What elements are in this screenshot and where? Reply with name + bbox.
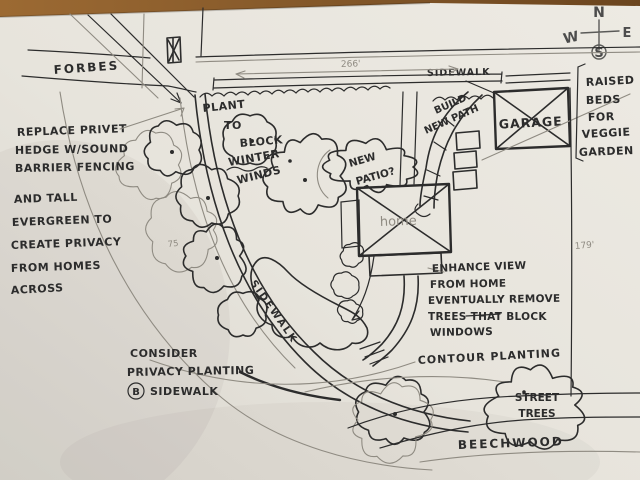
tree-center-dot [288,159,292,163]
note-line: HEDGE W/SOUND [15,142,129,157]
compass-west-label: W [562,29,580,48]
note-line: CONSIDER [130,347,198,360]
note-line: AND TALL [14,191,78,206]
note-line: BEDS [586,93,621,107]
circled-b-letter: B [132,387,140,398]
tree-center-dot [170,150,174,154]
home-label: home [380,214,417,230]
note-line: EVENTUALLY REMOVE [428,293,561,307]
tree-center-dot [215,256,219,260]
landscape-plan-photo: N W E S FORBES SIDEWALK 266' SIDEWALK 75 [0,0,640,480]
compass-east-label: E [623,26,632,41]
compass-north-label: N [593,5,605,21]
note-line: PRIVACY PLANTING [127,364,255,379]
tree-center-dot [522,390,526,394]
note-line: FOR [588,110,615,124]
note-line: WINDOWS [430,326,493,339]
note-line: TO [224,119,242,132]
note-line: RAISED [585,73,634,89]
street-trees-label-1: STREET [515,392,560,404]
tree-center-dot [206,196,210,200]
note-line: BARRIER FENCING [15,160,135,175]
plan-sketch-svg: N W E S FORBES SIDEWALK 266' SIDEWALK 75 [0,0,640,480]
note-line: GARDEN [579,144,634,159]
curve-measurement: 75 [167,239,179,250]
note-line: VEGGIE [581,125,630,141]
top-sidewalk-label: SIDEWALK [427,67,491,79]
note-line: TREES THAT BLOCK [428,311,547,323]
frontage-measurement: 266' [341,59,361,70]
note-line: ACROSS [10,281,63,297]
side-measurement: 179' [574,240,594,252]
note-line: SIDEWALK [150,385,218,398]
street-trees-label-2: TREES [518,408,555,420]
tree-center-dot [303,178,307,182]
note-line: FROM HOME [430,278,507,291]
